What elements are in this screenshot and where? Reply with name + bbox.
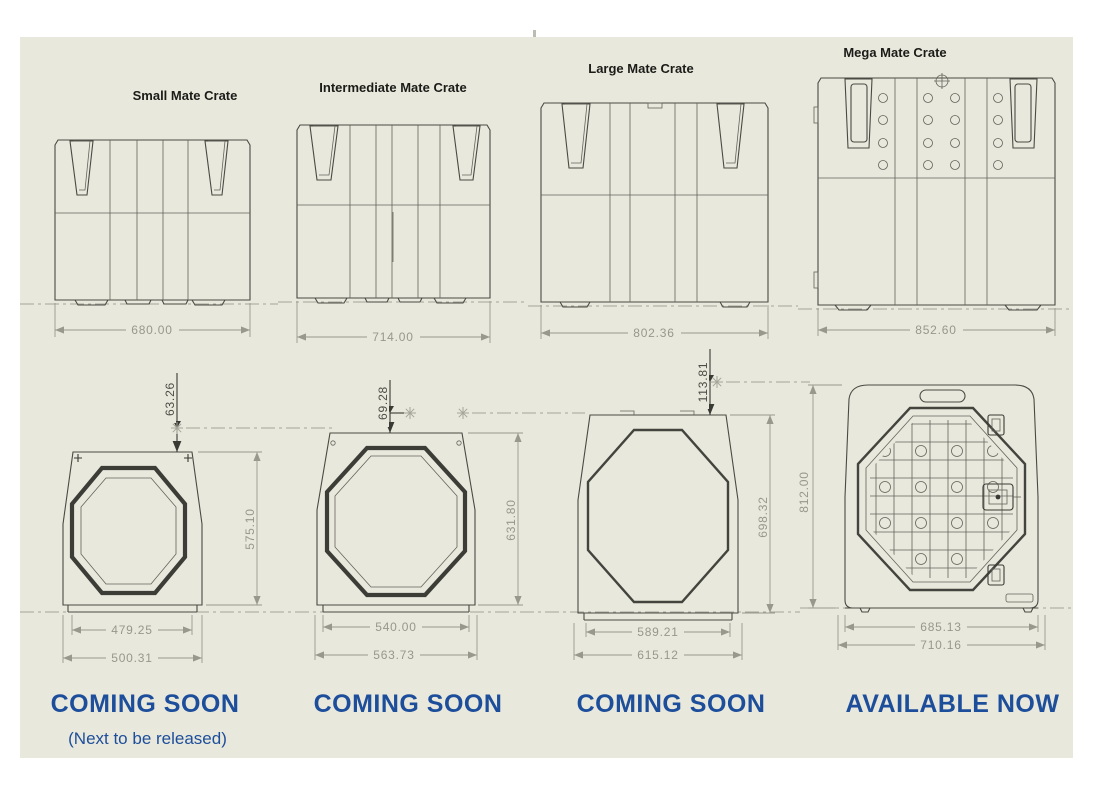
asterisk-mark (457, 407, 469, 419)
small-overall-width-dim: 500.31 (111, 651, 153, 665)
large-overall-width-dim: 615.12 (637, 648, 679, 662)
crosshair-icon (934, 73, 950, 89)
intermediate-top-offset-dim-group: 69.28 (376, 379, 585, 433)
small-top-offset-dim-group: 63.26 (163, 373, 335, 452)
intermediate-top-offset-dim: 69.28 (376, 386, 390, 420)
intermediate-crate-side-view: 714.00 (297, 125, 490, 344)
asterisk-mark (711, 376, 723, 388)
large-status-label: COMING SOON (571, 690, 771, 719)
mega-crate-title: Mega Mate Crate (800, 45, 990, 60)
mega-overall-width-dim: 710.16 (920, 638, 962, 652)
door-frame (327, 448, 465, 595)
door-frame (72, 468, 185, 593)
large-side-width-dim: 802.36 (633, 326, 675, 340)
door-frame (588, 430, 728, 602)
mega-door-width-dim: 685.13 (920, 620, 962, 634)
large-height-dim: 698.32 (756, 496, 770, 538)
intermediate-door-width-dim: 540.00 (375, 620, 417, 634)
small-top-offset-dim: 63.26 (163, 382, 177, 416)
page: { "colors": { "page_background": "#fffff… (0, 0, 1100, 797)
large-crate-title: Large Mate Crate (546, 61, 736, 76)
small-crate-title: Small Mate Crate (70, 88, 300, 103)
intermediate-status-label: COMING SOON (308, 690, 508, 719)
door-vent-holes (880, 446, 999, 565)
technical-drawing: 680.00 714.00 802.36 (20, 37, 1073, 758)
badge-plate (1006, 594, 1033, 602)
mega-crate-front-view: 812.00 685.13 710.16 (797, 385, 1045, 652)
large-top-offset-dim: 113.81 (696, 362, 710, 403)
intermediate-side-width-dim: 714.00 (372, 330, 414, 344)
mega-side-width-dim: 852.60 (915, 323, 957, 337)
drawing-canvas: 680.00 714.00 802.36 (20, 37, 1073, 758)
large-door-width-dim: 589.21 (637, 625, 679, 639)
mega-status-label: AVAILABLE NOW (835, 690, 1070, 719)
vent-holes (879, 94, 1003, 170)
large-crate-front-view: 113.81 698.32 589.21 615.12 (574, 349, 810, 662)
mega-crate-side-view: 852.60 (814, 73, 1055, 337)
large-crate-side-view: 802.36 (541, 103, 768, 340)
intermediate-overall-width-dim: 563.73 (373, 648, 415, 662)
centerline-bottom-row (20, 608, 1073, 612)
small-height-dim: 575.10 (243, 508, 257, 550)
handle-slot-icon (1010, 79, 1037, 148)
carry-handle-cutout (920, 390, 965, 402)
handle-slot-icon (845, 79, 872, 148)
small-crate-side-view: 680.00 (55, 140, 250, 337)
small-status-label: COMING SOON (45, 690, 245, 719)
intermediate-crate-front-view: 69.28 631.80 540.00 563.73 (315, 379, 585, 662)
intermediate-height-dim: 631.80 (504, 499, 518, 541)
release-note: (Next to be released) (50, 729, 245, 749)
large-top-offset-dim-group: 113.81 (696, 349, 810, 415)
asterisk-mark (404, 407, 416, 419)
mega-height-dim: 812.00 (797, 471, 811, 513)
small-crate-front-view: 63.26 575.10 479.25 500.31 (63, 373, 335, 665)
intermediate-crate-title: Intermediate Mate Crate (288, 80, 498, 95)
small-door-width-dim: 479.25 (111, 623, 153, 637)
asterisk-mark (171, 422, 183, 434)
small-side-width-dim: 680.00 (131, 323, 173, 337)
screw-mark-icon (74, 454, 192, 462)
